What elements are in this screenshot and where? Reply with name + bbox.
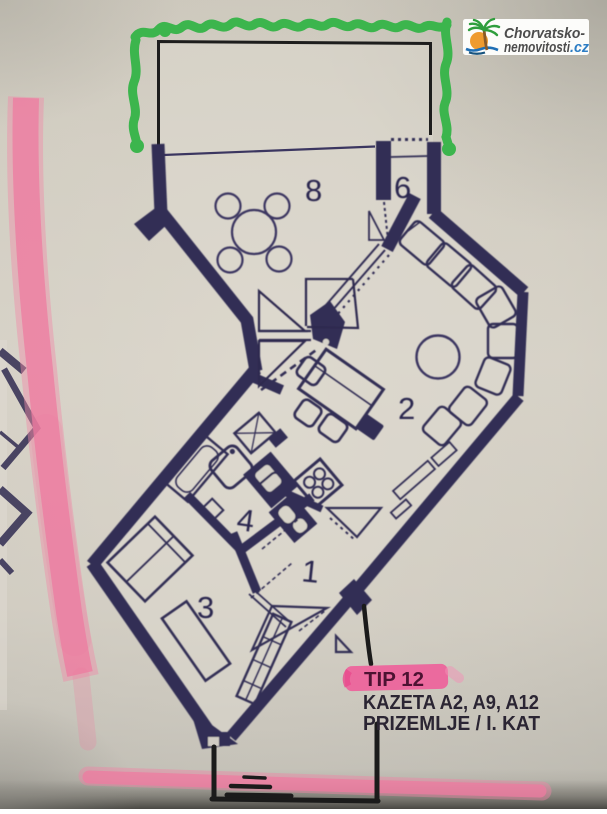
svg-text:2: 2 [398, 391, 415, 426]
svg-text:3: 3 [197, 590, 214, 625]
svg-text:TIP 12: TIP 12 [364, 669, 424, 691]
svg-text:PRIZEMLJE / I. KAT: PRIZEMLJE / I. KAT [363, 713, 540, 735]
svg-text:KAZETA A2, A9, A12: KAZETA A2, A9, A12 [363, 692, 539, 714]
svg-text:.cz: .cz [570, 39, 589, 56]
svg-text:6: 6 [394, 170, 411, 205]
svg-text:8: 8 [305, 173, 322, 208]
svg-text:1: 1 [300, 553, 321, 590]
svg-text:nemovitosti: nemovitosti [504, 39, 571, 56]
